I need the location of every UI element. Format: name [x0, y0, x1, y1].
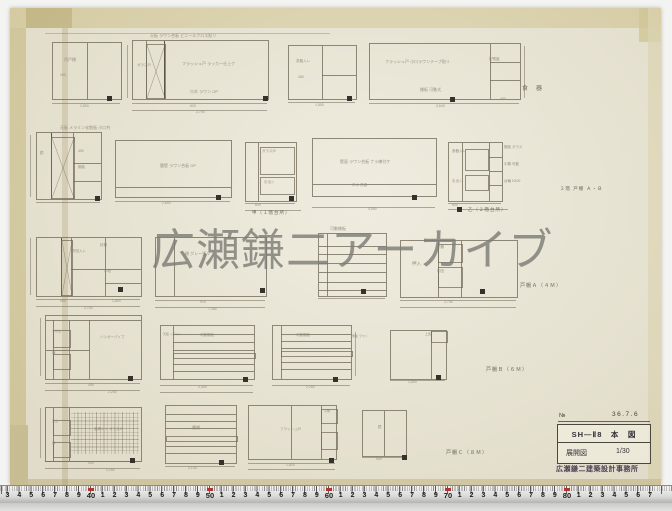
- pencil-line: [281, 362, 351, 363]
- pencil-annotation: 棚板 ガラス: [504, 146, 522, 150]
- pencil-annotation: 3,640: [436, 105, 445, 109]
- dimension-line: [165, 466, 235, 467]
- pencil-line: [173, 364, 254, 365]
- dimension-line: [390, 380, 445, 381]
- cabinet-drawing: [45, 407, 142, 462]
- cabinet-drawing: [312, 138, 437, 197]
- ruler-number: 4: [17, 492, 21, 499]
- stamp-mark: [107, 96, 112, 101]
- ruler-number: 1: [101, 492, 105, 499]
- stamp-mark: [216, 195, 221, 200]
- pencil-line: [166, 453, 236, 454]
- dimension-line: [132, 103, 267, 104]
- pencil-annotation: 1,820: [286, 464, 295, 468]
- drawing-caption: 戸棚Ｃ（８Ｍ）: [446, 451, 488, 456]
- dimension-line: [362, 457, 405, 458]
- pencil-annotation: 書棚: [192, 426, 200, 430]
- pencil-annotation: 2,700: [84, 307, 93, 311]
- ruler-number: 9: [434, 492, 438, 499]
- pencil-line: [322, 46, 323, 99]
- drawing-caption: 戸棚Ａ（４Ｍ）: [520, 284, 562, 289]
- pencil-annotation: 1,500: [408, 381, 417, 385]
- dimension-line: [45, 390, 140, 391]
- wire-glass-hatch: [71, 412, 139, 454]
- pencil-annotation: 2,400: [198, 386, 207, 390]
- dimension-line: [400, 300, 516, 301]
- ruler-number: 7: [172, 492, 176, 499]
- pencil-line: [116, 187, 231, 188]
- pencil-annotation: 450: [88, 462, 94, 466]
- ruler-number: 6: [398, 492, 402, 499]
- pencil-annotation: 台輪 H100: [504, 180, 520, 184]
- pencil-line: [489, 157, 502, 158]
- pencil-annotation: 巾木 共通: [352, 184, 367, 188]
- pencil-box: [465, 175, 489, 191]
- ruler-number: 2: [113, 492, 117, 499]
- pencil-line: [166, 414, 236, 415]
- ruler-number: 4: [136, 492, 140, 499]
- pencil-annotation: 600: [452, 204, 458, 208]
- stamp-mark: [436, 375, 441, 380]
- pencil-annotation: 配電盤: [489, 58, 500, 62]
- pencil-line: [319, 290, 386, 291]
- pencil-box: [431, 331, 448, 343]
- stamp-mark: [457, 207, 462, 212]
- pencil-annotation: 900: [60, 300, 66, 304]
- title-block-date: 36.7.6: [612, 411, 639, 418]
- pencil-annotation: 鏡: [378, 426, 382, 430]
- ruler-number: 7: [648, 492, 652, 499]
- ruler-number: 5: [29, 492, 33, 499]
- pencil-line: [173, 350, 254, 351]
- pencil-annotation: 1,800: [112, 300, 121, 304]
- pencil-line: [73, 163, 101, 164]
- pencil-line: [87, 43, 88, 99]
- drawing-caption: 食 器: [522, 86, 543, 92]
- pencil-annotation: 茶器入レ: [296, 60, 310, 64]
- dimension-line-vertical: [30, 135, 31, 197]
- stamp-mark: [289, 196, 294, 201]
- title-block-project: SH—Ⅱ8 本 図: [558, 429, 650, 440]
- pencil-annotation: 食器入レ: [452, 150, 466, 154]
- ruler-number: 2: [589, 492, 593, 499]
- pencil-annotation: 2,600: [162, 202, 171, 206]
- ruler-number: 5: [148, 492, 152, 499]
- cabinet-drawing: [248, 405, 337, 460]
- ruler-number: 8: [184, 492, 188, 499]
- pencil-annotation: 扉: [52, 442, 56, 446]
- ruler-number: 2: [232, 492, 236, 499]
- pencil-box: [321, 432, 338, 450]
- pencil-annotation: 450: [500, 98, 506, 102]
- dimension-line-vertical: [40, 318, 41, 376]
- ruler-number: 4: [612, 492, 616, 499]
- ruler-number: 9: [553, 492, 557, 499]
- ruler-number-major: 80: [563, 492, 571, 500]
- pencil-annotation: 天板 ラワン合板 ビニールクロス貼リ: [150, 34, 216, 38]
- pencil-line: [319, 282, 386, 283]
- pencil-box: [281, 351, 353, 357]
- ruler-number: 6: [160, 492, 164, 499]
- dimension-line: [155, 300, 265, 301]
- cabinet-drawing: [288, 45, 357, 100]
- ruler-number: 1: [577, 492, 581, 499]
- pencil-annotation: 4,550: [368, 208, 377, 212]
- ruler-number: 9: [315, 492, 319, 499]
- pencil-line: [281, 348, 351, 349]
- stamp-mark: [128, 376, 133, 381]
- stamp-mark: [480, 289, 485, 294]
- ruler-number: 5: [624, 492, 628, 499]
- pencil-annotation: 天板 メラミン化粧板 小口共: [60, 126, 110, 130]
- pencil-annotation: フラッシュ戸 小口ラワンテープ貼リ: [385, 60, 450, 64]
- x-brace-door: [51, 137, 75, 199]
- pencil-annotation: 900: [376, 458, 382, 462]
- pencil-annotation: 引出シ: [264, 181, 275, 185]
- pencil-annotation: 鏡: [40, 152, 44, 156]
- pencil-annotation: 吊戸棚: [64, 58, 76, 62]
- scanned-drawing-page: 吊戸棚450天板 ラワン合板 ビニールクロス貼リガラス戸フラッシュ戸 ラッカー仕…: [0, 0, 672, 511]
- cabinet-drawing: [52, 42, 122, 100]
- ruler-number: 7: [53, 492, 57, 499]
- pencil-line: [281, 341, 351, 342]
- pencil-annotation: 中棚 可動: [504, 163, 519, 167]
- ruler-number: 1: [220, 492, 224, 499]
- pencil-line: [490, 80, 520, 81]
- pencil-annotation: 可動棚板: [296, 334, 310, 338]
- ruler-number: 4: [255, 492, 259, 499]
- pencil-box: [166, 436, 238, 442]
- pencil-annotation: 金網入リ ガラス戸: [94, 428, 123, 432]
- dimension-line: [245, 203, 295, 204]
- ruler-number: 5: [267, 492, 271, 499]
- pencil-box: [53, 354, 71, 370]
- pencil-line: [166, 428, 236, 429]
- pencil-annotation: 棚板 可動式: [420, 88, 441, 92]
- drawing-caption: ２階 戸棚 Ａ・Ｂ: [560, 187, 603, 192]
- ruler-number: 7: [529, 492, 533, 499]
- ruler-number: 3: [6, 492, 10, 499]
- ruler-number: 8: [422, 492, 426, 499]
- cabinet-drawing: [115, 140, 232, 198]
- ruler-number: 6: [279, 492, 283, 499]
- ruler-number: 7: [410, 492, 414, 499]
- stamp-mark: [219, 460, 224, 465]
- pencil-annotation: 天板 メラミン: [163, 333, 182, 336]
- pencil-annotation: 1,500: [315, 104, 324, 108]
- stamp-mark: [329, 458, 334, 463]
- stamp-mark: [130, 458, 135, 463]
- title-block-scale: 1/30: [616, 448, 630, 455]
- stamp-mark: [260, 288, 265, 293]
- pencil-box: [173, 353, 256, 359]
- ruler-number: 7: [291, 492, 295, 499]
- pencil-line: [89, 320, 90, 379]
- pencil-annotation: 600: [190, 105, 196, 109]
- dimension-line: [36, 299, 140, 300]
- pencil-annotation: 7,280: [208, 308, 217, 312]
- ruler-number: 3: [363, 492, 367, 499]
- pencil-line: [258, 143, 259, 201]
- ruler-number: 5: [386, 492, 390, 499]
- pencil-line: [173, 342, 254, 343]
- stamp-mark: [347, 96, 352, 101]
- cabinet-drawing: [362, 410, 407, 457]
- pencil-line: [489, 185, 502, 186]
- stamp-mark: [361, 289, 366, 294]
- pencil-annotation: フラッシュ戸: [280, 428, 301, 432]
- pencil-annotation: 側板 ラワン: [352, 335, 368, 338]
- drawing-caption: 甲（１階台所）: [252, 211, 291, 216]
- ruler-number: 1: [339, 492, 343, 499]
- ruler-number: 3: [482, 492, 486, 499]
- cabinet-drawing: [390, 330, 447, 380]
- ruler-number-major: 50: [206, 492, 214, 500]
- ruler-number: 2: [351, 492, 355, 499]
- dimension-line: [36, 202, 100, 203]
- measuring-tape-ruler: 3456789401234567895012345678960123456789…: [0, 485, 672, 504]
- dimension-line: [45, 468, 140, 469]
- title-block: SH—Ⅱ8 本 図 展開図 1/30: [557, 424, 651, 464]
- watermark-text: 広瀬鎌二アーカイブ: [151, 229, 553, 273]
- pencil-line: [281, 334, 351, 335]
- dimension-line: [248, 469, 335, 470]
- ruler-number: 3: [601, 492, 605, 499]
- pencil-annotation: 450: [78, 150, 84, 154]
- cabinet-drawing: [36, 237, 142, 297]
- dimension-line: [160, 392, 253, 393]
- title-block-divider: [558, 442, 650, 443]
- ruler-number: 9: [77, 492, 81, 499]
- stamp-mark: [450, 97, 455, 102]
- pencil-line: [166, 421, 236, 422]
- office-stamp-text: 広瀬鎌二建築設計事務所: [556, 464, 639, 474]
- pencil-annotation: 450: [298, 76, 304, 80]
- stamp-mark: [333, 377, 338, 382]
- pencil-line: [490, 44, 491, 99]
- ruler-number-major: 60: [325, 492, 333, 500]
- ruler-number: 8: [541, 492, 545, 499]
- pencil-line: [105, 283, 141, 284]
- pencil-line: [489, 143, 490, 201]
- ruler-number: 3: [125, 492, 129, 499]
- ruler-number: 6: [517, 492, 521, 499]
- ruler-number: 4: [374, 492, 378, 499]
- pencil-annotation: 910: [200, 301, 206, 305]
- dimension-line: [318, 298, 385, 299]
- scanner-background-strip: [0, 503, 672, 511]
- pencil-annotation: 2,250: [108, 391, 117, 395]
- pencil-box: [465, 149, 489, 171]
- title-block-no-label: №: [559, 413, 565, 419]
- pencil-line: [73, 181, 101, 182]
- stamp-mark: [402, 455, 407, 460]
- dimension-line: [400, 307, 516, 308]
- ruler-number: 6: [636, 492, 640, 499]
- pencil-line: [322, 75, 356, 76]
- dimension-line-vertical: [40, 408, 41, 458]
- cabinet-drawing: [272, 325, 352, 380]
- cabinet-drawing: [165, 405, 237, 464]
- drawing-caption: 乙（２階台所）: [468, 208, 507, 213]
- pencil-line: [173, 371, 254, 372]
- pencil-annotation: 布団入レ: [72, 250, 86, 254]
- pencil-annotation: 600: [255, 204, 261, 208]
- ruler-number: 8: [65, 492, 69, 499]
- pencil-line: [46, 320, 141, 321]
- pencil-line: [291, 406, 292, 459]
- ruler-number: 3: [244, 492, 248, 499]
- pencil-line: [313, 184, 436, 185]
- stamp-mark: [118, 287, 123, 292]
- pencil-annotation: 2,130: [188, 467, 197, 471]
- pencil-annotation: 扉: [52, 352, 56, 356]
- pencil-annotation: 可動棚板: [200, 334, 214, 338]
- ruler-number: 9: [196, 492, 200, 499]
- pencil-annotation: 2,250: [106, 469, 115, 473]
- pencil-line: [384, 411, 385, 456]
- pencil-annotation: 450: [60, 74, 66, 78]
- cabinet-drawing: [36, 132, 102, 200]
- stamp-mark: [243, 377, 248, 382]
- pencil-annotation: 引出: [52, 420, 58, 423]
- cabinet-drawing: [369, 43, 521, 100]
- pencil-annotation: 中段: [104, 270, 111, 274]
- dimension-line-vertical: [127, 45, 128, 98]
- ruler-number: 2: [470, 492, 474, 499]
- pencil-annotation: 棚板: [78, 166, 85, 170]
- pencil-annotation: 小物: [324, 410, 330, 413]
- ruler-number: 6: [41, 492, 45, 499]
- pencil-annotation: 450: [88, 384, 94, 388]
- pencil-line: [489, 171, 502, 172]
- title-block-rule: [558, 421, 650, 422]
- pencil-annotation: 上置: [425, 333, 431, 336]
- ruler-number-major: 70: [444, 492, 452, 500]
- pencil-annotation: 腰壁 ラワン合板 OP: [160, 164, 196, 168]
- pencil-annotation: 2,250: [306, 386, 315, 390]
- ruler-number: 1: [458, 492, 462, 499]
- drawing-caption: 戸棚Ｂ（６Ｍ）: [486, 368, 528, 373]
- ruler-number: 5: [505, 492, 509, 499]
- pencil-annotation: 枕棚: [100, 244, 107, 248]
- pencil-annotation: 壁面 ラワン合板 ナラ練付ケ: [340, 160, 390, 164]
- pencil-annotation: 引出シ: [452, 180, 463, 184]
- pencil-annotation: ガラス戸: [137, 64, 151, 68]
- pencil-annotation: 2,700: [196, 111, 205, 115]
- pencil-annotation: ハンガーパイプ: [100, 336, 124, 340]
- ruler-number: 4: [493, 492, 497, 499]
- pencil-line: [281, 369, 351, 370]
- dimension-line-vertical: [355, 332, 356, 376]
- pencil-annotation: ガラス戸: [262, 150, 276, 154]
- title-block-drawing-type: 展開図: [566, 448, 587, 458]
- ruler-number-major: 40: [87, 492, 95, 500]
- pencil-annotation: 小引出: [52, 330, 61, 333]
- stamp-mark: [412, 195, 417, 200]
- pencil-annotation: 2,730: [444, 301, 453, 305]
- dimension-line-vertical: [30, 238, 31, 295]
- x-brace-door: [146, 44, 166, 99]
- pencil-annotation: 1,800: [80, 105, 89, 109]
- stamp-mark: [263, 96, 268, 101]
- ruler-number: 8: [303, 492, 307, 499]
- dimension-line: [115, 201, 230, 202]
- stamp-mark: [95, 196, 100, 201]
- pencil-line: [166, 446, 236, 447]
- pencil-annotation: フラッシュ戸 ラッカー仕上ゲ: [182, 62, 235, 66]
- cabinet-drawing: [45, 315, 142, 380]
- pencil-annotation: 巾木 ラワン OP: [190, 90, 218, 94]
- pencil-line: [490, 62, 520, 63]
